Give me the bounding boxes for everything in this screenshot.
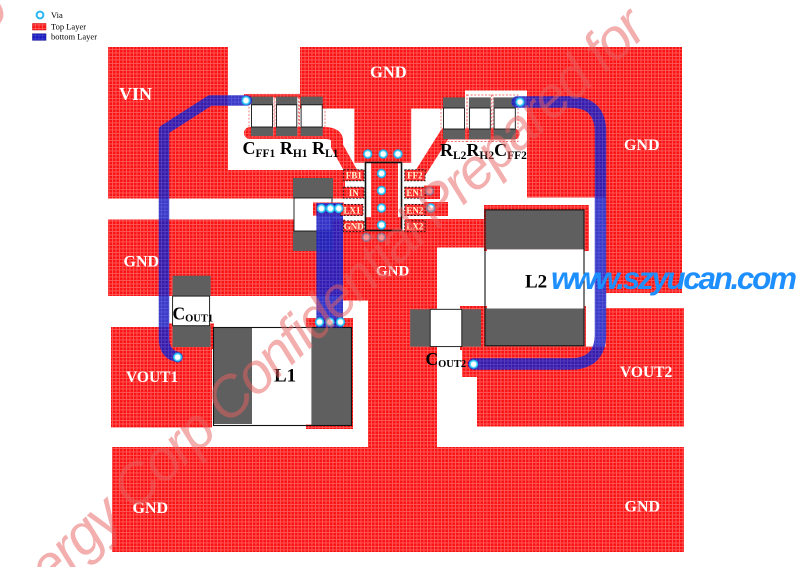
svg-text:www.szyucan.com: www.szyucan.com (551, 260, 797, 296)
svg-text:VIN: VIN (119, 84, 152, 104)
svg-text:Via: Via (51, 10, 63, 20)
svg-text:FB1: FB1 (346, 171, 363, 181)
svg-text:GND: GND (124, 254, 160, 271)
svg-text:VOUT1: VOUT1 (126, 369, 178, 386)
svg-text:Top Layer: Top Layer (51, 21, 86, 31)
svg-text:VOUT2: VOUT2 (620, 364, 672, 381)
svg-text:bottom Layer: bottom Layer (51, 32, 97, 42)
svg-text:IN: IN (349, 188, 360, 198)
svg-text:GND: GND (624, 137, 660, 154)
svg-text:LX1: LX1 (343, 205, 361, 215)
svg-text:L2: L2 (525, 272, 547, 293)
svg-text:GND: GND (625, 499, 661, 516)
svg-text:GND: GND (370, 63, 407, 82)
